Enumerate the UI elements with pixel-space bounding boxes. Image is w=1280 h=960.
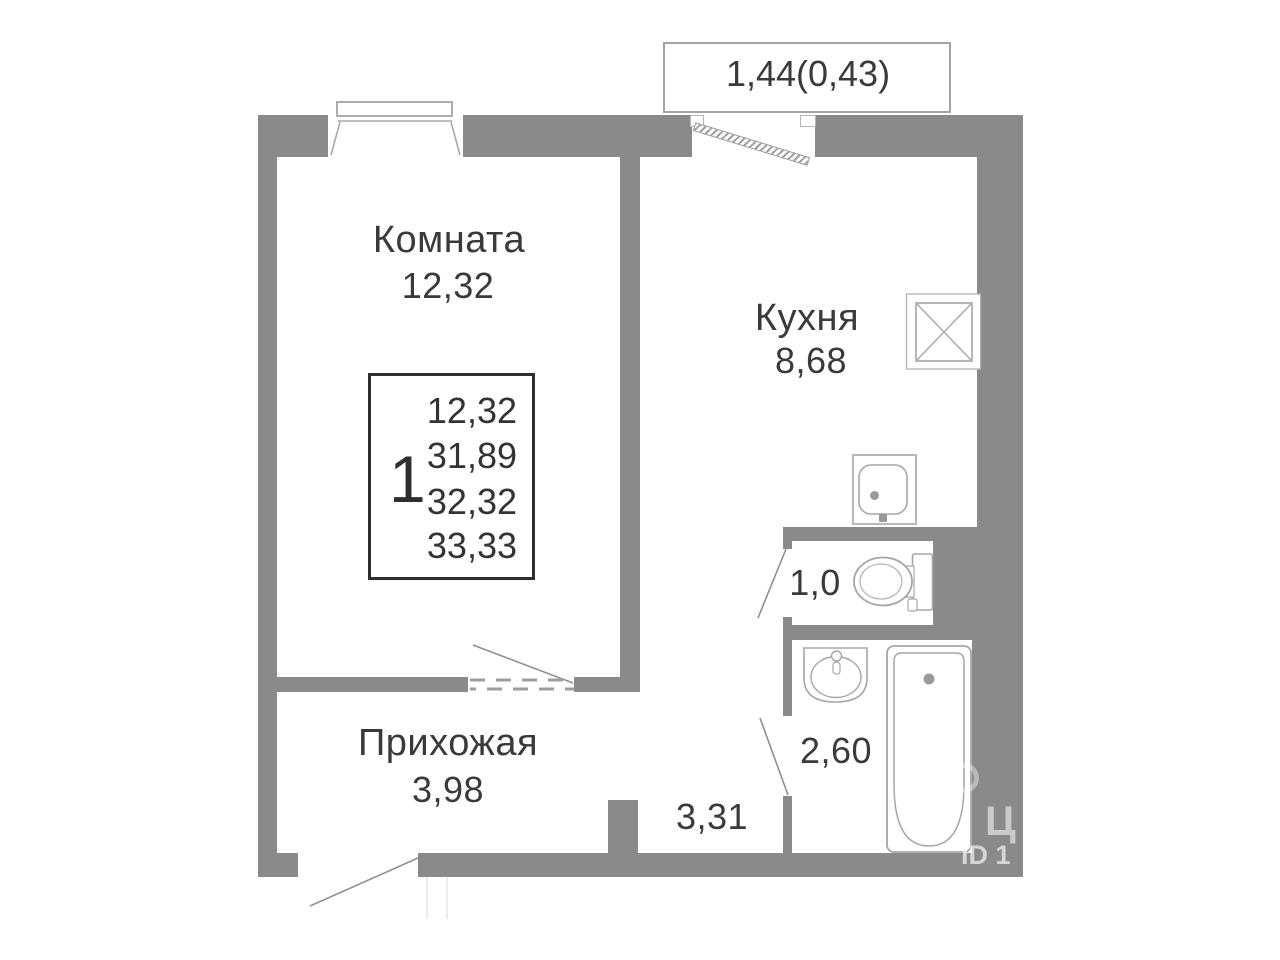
hallway-name-label: Прихожая bbox=[358, 724, 538, 762]
corridor-area-label: 3,31 bbox=[676, 799, 748, 835]
rooms-count: 1 bbox=[389, 446, 426, 512]
room-area-label: 12,32 bbox=[402, 268, 495, 304]
bathroom-area-label: 2,60 bbox=[800, 733, 872, 769]
apartment-info-box: 1 12,32 31,89 32,32 33,33 bbox=[368, 373, 535, 580]
toilet-icon bbox=[854, 554, 933, 611]
washbasin-icon bbox=[804, 648, 867, 702]
wall-left bbox=[258, 115, 277, 877]
kitchen-area-label: 8,68 bbox=[775, 343, 847, 379]
watermark-id: ID 1 bbox=[961, 842, 1011, 869]
wall-bath-left-top bbox=[783, 640, 792, 716]
room-door-opening bbox=[468, 677, 574, 692]
info-value-living: 12,32 bbox=[427, 393, 517, 429]
wc-area-label: 1,0 bbox=[789, 565, 841, 601]
wc-door-swing bbox=[758, 549, 786, 618]
window-opening bbox=[328, 115, 463, 157]
window-icon bbox=[336, 101, 453, 117]
porch-line bbox=[446, 877, 448, 919]
wall-bath-left-bottom bbox=[783, 796, 792, 853]
room-name-label: Комната bbox=[373, 221, 525, 259]
bathroom-door-swing bbox=[760, 718, 788, 795]
wall-shaft-block bbox=[933, 527, 1023, 640]
watermark-name: ЦИАН bbox=[985, 800, 1127, 842]
wall-wc-left-bottom bbox=[783, 617, 792, 640]
hallway-area-label: 3,98 bbox=[412, 772, 484, 808]
watermark-logo-icon bbox=[949, 763, 979, 793]
wall-wc-left-top bbox=[783, 527, 792, 549]
porch-line bbox=[426, 877, 428, 919]
wall-wc-bathroom bbox=[783, 625, 933, 640]
entrance-door-opening bbox=[298, 853, 418, 877]
floor-plan: 1,44(0,43) bbox=[0, 0, 1280, 960]
wall-hallway-stub bbox=[608, 800, 638, 855]
bathtub-icon bbox=[887, 646, 971, 852]
info-value-area-1: 31,89 bbox=[427, 438, 517, 474]
balcony-door-jamb-right bbox=[800, 115, 816, 127]
info-value-area-2: 32,32 bbox=[427, 484, 517, 520]
balcony-area-label: 1,44(0,43) bbox=[726, 56, 890, 92]
stove-icon bbox=[907, 294, 981, 369]
wall-room-kitchen bbox=[620, 157, 640, 692]
kitchen-name-label: Кухня bbox=[755, 299, 859, 337]
info-value-total: 33,33 bbox=[427, 528, 517, 564]
kitchen-sink-icon bbox=[853, 455, 916, 524]
